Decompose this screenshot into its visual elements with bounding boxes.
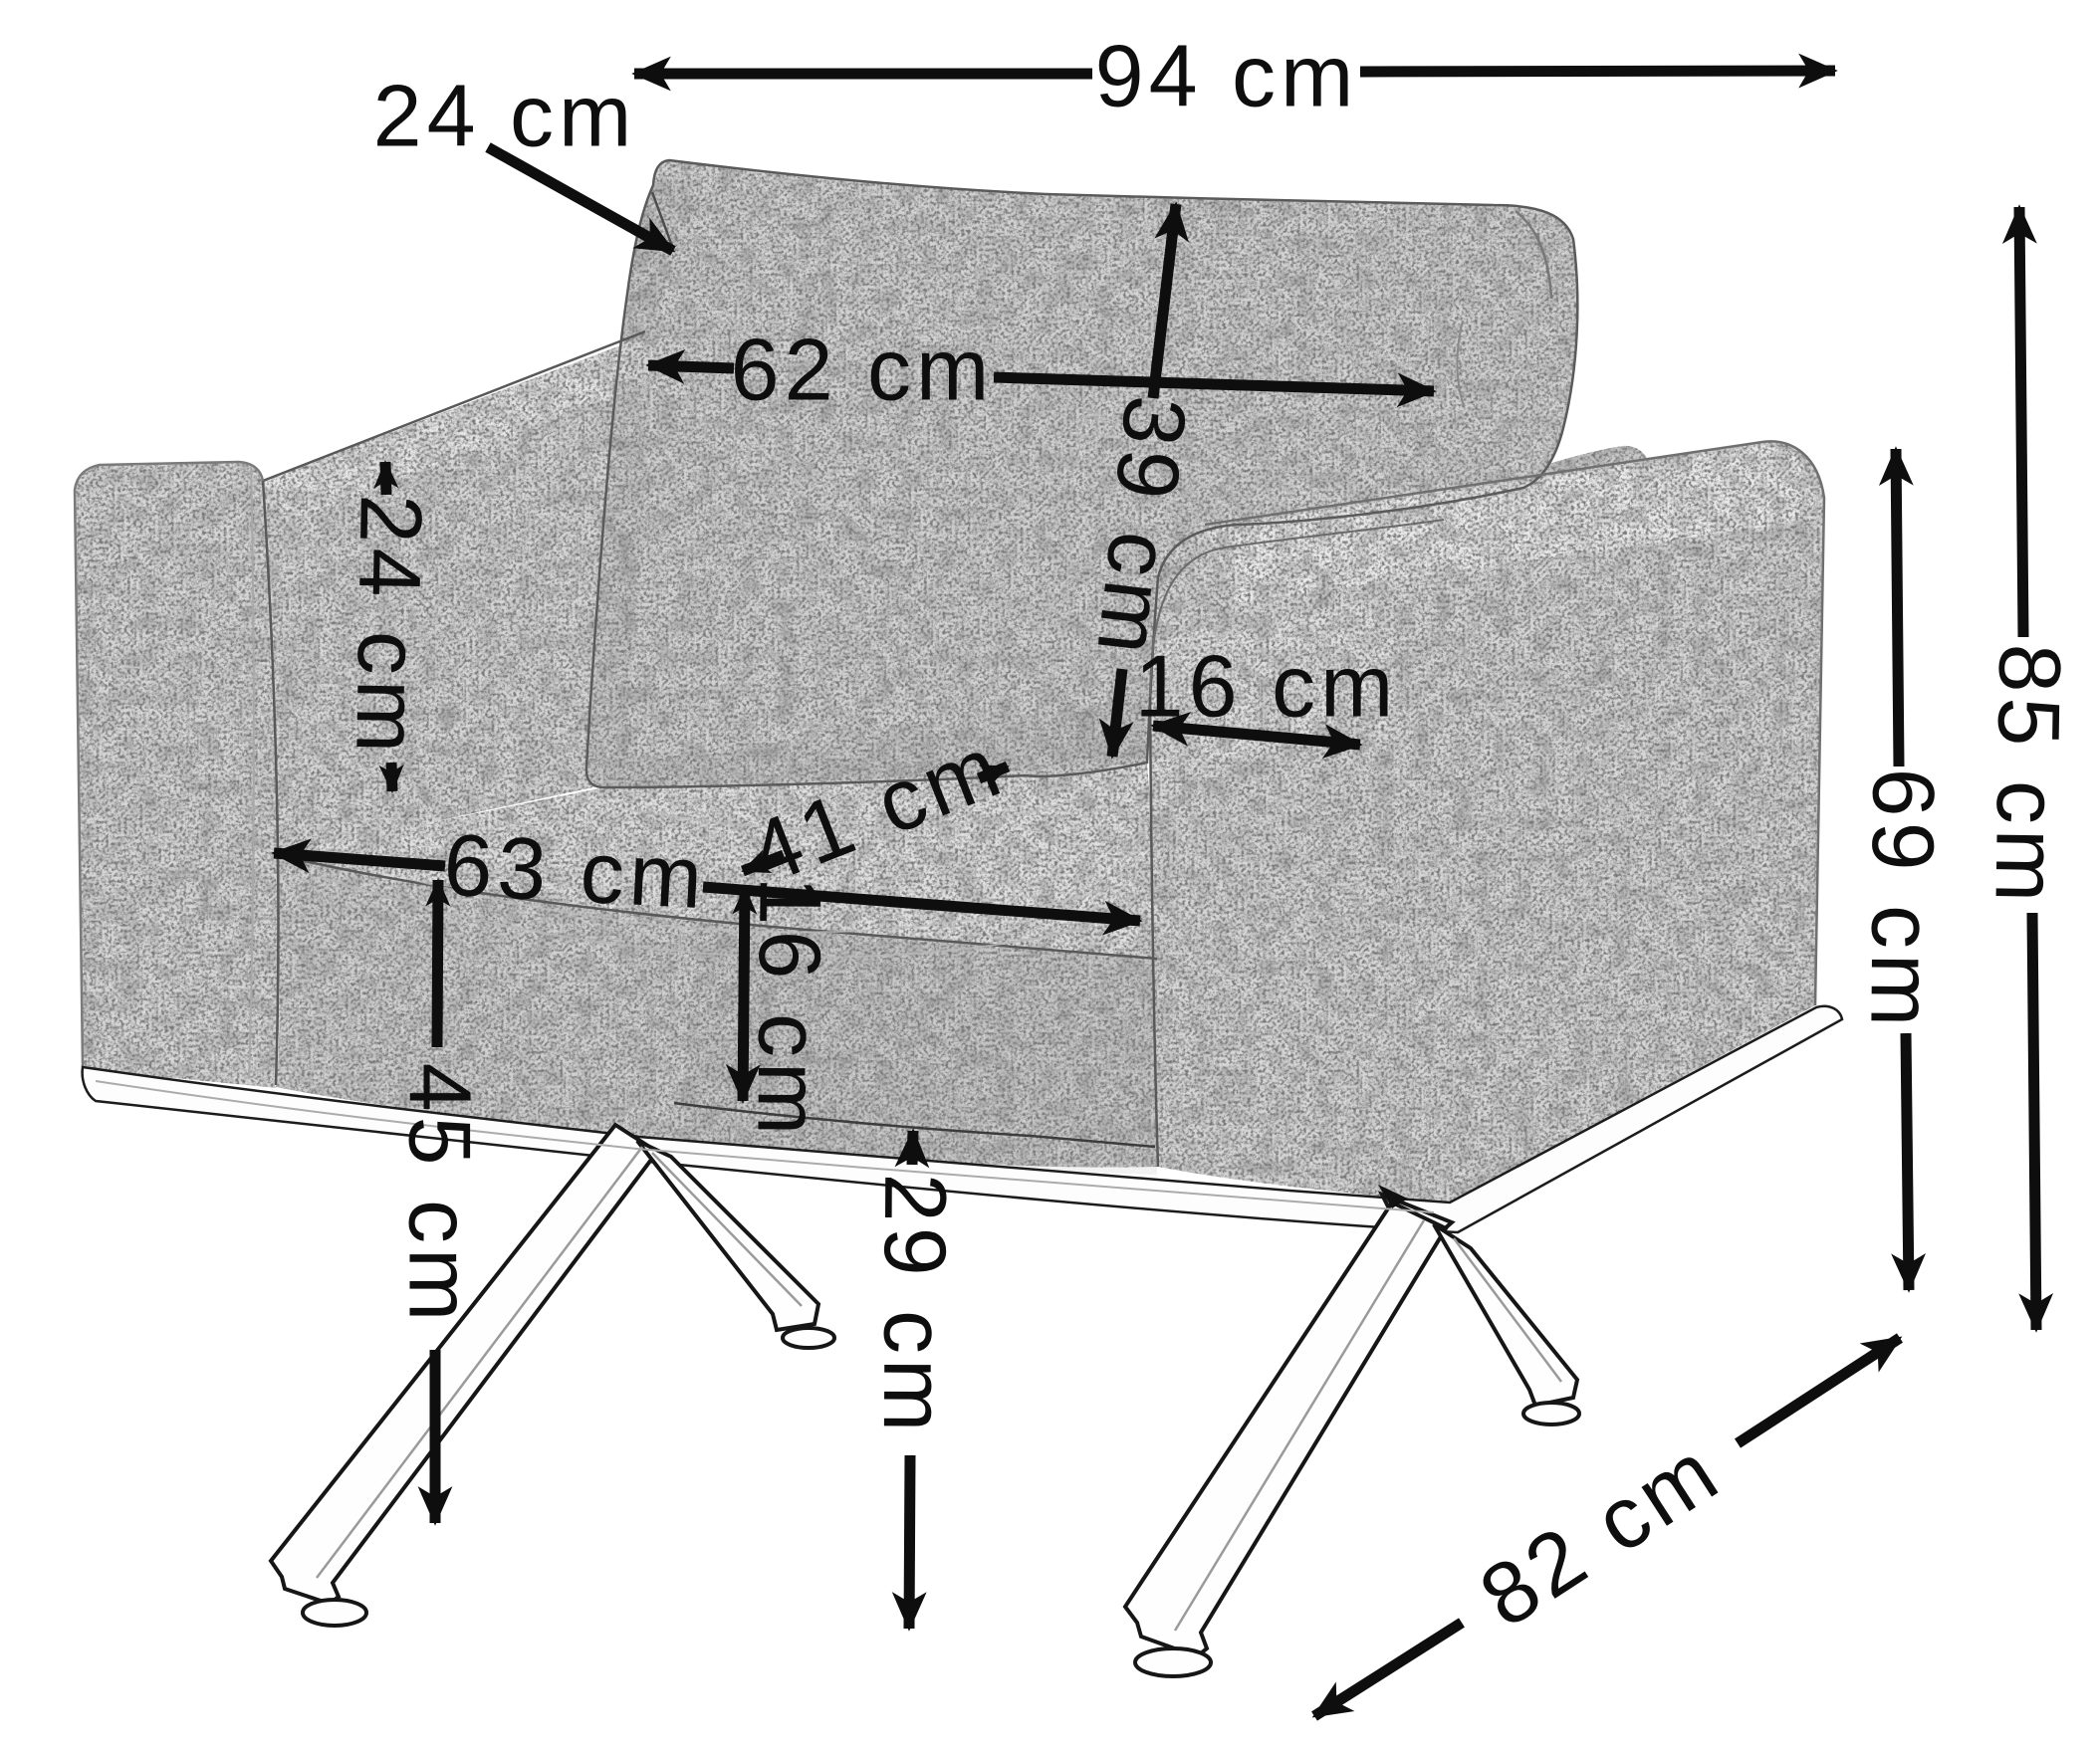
- svg-text:62 cm: 62 cm: [731, 321, 995, 419]
- svg-text:94 cm: 94 cm: [1095, 27, 1359, 125]
- svg-text:29 cm: 29 cm: [865, 1173, 965, 1436]
- svg-text:85 cm: 85 cm: [1977, 643, 2079, 908]
- svg-text:24 cm: 24 cm: [373, 67, 637, 165]
- svg-text:69 cm: 69 cm: [1852, 767, 1953, 1031]
- svg-text:24 cm: 24 cm: [338, 494, 441, 759]
- svg-text:45 cm: 45 cm: [391, 1063, 490, 1327]
- svg-text:16 cm: 16 cm: [1135, 637, 1399, 736]
- svg-text:63 cm: 63 cm: [441, 815, 709, 928]
- svg-text:16 cm: 16 cm: [739, 876, 839, 1140]
